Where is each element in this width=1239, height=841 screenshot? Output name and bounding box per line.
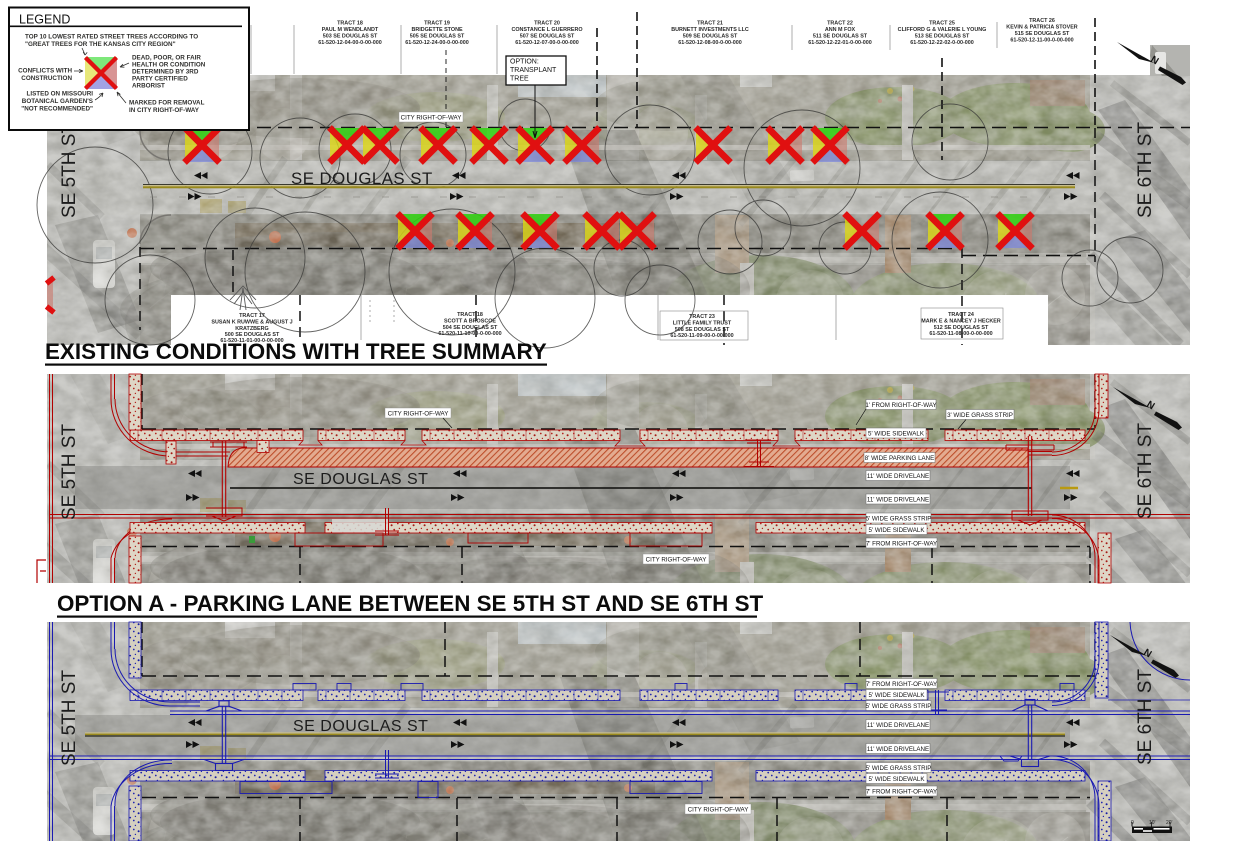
svg-text:5' WIDE SIDEWALK: 5' WIDE SIDEWALK <box>869 692 926 699</box>
svg-text:515 SE DOUGLAS ST: 515 SE DOUGLAS ST <box>1015 31 1070 37</box>
svg-text:8' WIDE PARKING LANE: 8' WIDE PARKING LANE <box>865 455 935 462</box>
svg-text:SE 6TH ST: SE 6TH ST <box>1135 122 1156 218</box>
svg-text:MARK E & NANCEY J HECKER: MARK E & NANCEY J HECKER <box>921 319 1001 325</box>
svg-text:LITTLE FAMILY TRUST: LITTLE FAMILY TRUST <box>673 321 732 327</box>
svg-text:SE DOUGLAS ST: SE DOUGLAS ST <box>293 471 428 488</box>
svg-text:DETERMINED BY 3RD: DETERMINED BY 3RD <box>132 69 199 76</box>
svg-text:61-520-12-11-00-0-00-000: 61-520-12-11-00-0-00-000 <box>1010 38 1073 44</box>
svg-text:20': 20' <box>1166 820 1173 826</box>
svg-text:BRIDGETTE STONE: BRIDGETTE STONE <box>411 27 463 33</box>
svg-text:LEGEND: LEGEND <box>19 13 70 27</box>
svg-text:SE 6TH ST: SE 6TH ST <box>1135 669 1156 765</box>
svg-text:TRACT 25: TRACT 25 <box>929 21 955 27</box>
svg-text:OPTION:: OPTION: <box>510 59 539 66</box>
svg-text:"NOT RECOMMENDED": "NOT RECOMMENDED" <box>21 106 93 113</box>
svg-text:TRACT 18: TRACT 18 <box>337 21 363 27</box>
svg-text:5' WIDE SIDEWALK: 5' WIDE SIDEWALK <box>868 431 925 438</box>
svg-text:TRACT 17: TRACT 17 <box>239 313 265 319</box>
svg-text:61-520-12-04-00-0-00-000: 61-520-12-04-00-0-00-000 <box>318 40 382 46</box>
svg-text:SE 5TH ST: SE 5TH ST <box>59 424 80 520</box>
svg-text:10': 10' <box>1149 820 1156 826</box>
svg-text:CONSTANCE L GUERRERO: CONSTANCE L GUERRERO <box>511 27 582 33</box>
svg-text:TRACT 22: TRACT 22 <box>827 21 853 27</box>
svg-text:TRACT 24: TRACT 24 <box>948 312 974 318</box>
svg-text:CITY RIGHT-OF-WAY: CITY RIGHT-OF-WAY <box>401 115 462 122</box>
svg-text:TREE: TREE <box>510 76 529 83</box>
svg-text:5' WIDE SIDEWALK: 5' WIDE SIDEWALK <box>869 776 926 783</box>
svg-text:SE 6TH ST: SE 6TH ST <box>1135 423 1156 519</box>
svg-text:TOP 10 LOWEST RATED STREET TRE: TOP 10 LOWEST RATED STREET TREES ACCORDI… <box>25 34 198 41</box>
svg-text:LISTED ON MISSOURI: LISTED ON MISSOURI <box>27 91 94 98</box>
svg-text:5' WIDE GRASS STRIP: 5' WIDE GRASS STRIP <box>866 765 932 772</box>
svg-text:61-520-11-08-00-0-00-000: 61-520-11-08-00-0-00-000 <box>929 331 992 337</box>
svg-text:7' FROM RIGHT-OF-WAY: 7' FROM RIGHT-OF-WAY <box>866 789 937 796</box>
svg-text:7' FROM RIGHT-OF-WAY: 7' FROM RIGHT-OF-WAY <box>866 681 937 688</box>
svg-text:TRACT 23: TRACT 23 <box>689 314 715 320</box>
svg-text:61-520-12-07-00-0-00-000: 61-520-12-07-00-0-00-000 <box>515 40 579 46</box>
svg-text:61-520-12-22-01-0-00-000: 61-520-12-22-01-0-00-000 <box>808 40 872 46</box>
svg-text:PARTY CERTIFIED: PARTY CERTIFIED <box>132 76 188 83</box>
svg-text:BOTANICAL GARDEN'S: BOTANICAL GARDEN'S <box>22 98 93 105</box>
svg-text:TRACT 21: TRACT 21 <box>697 21 723 27</box>
svg-text:"GREAT TREES FOR THE KANSAS CI: "GREAT TREES FOR THE KANSAS CITY REGION" <box>25 41 176 48</box>
svg-text:509 SE DOUGLAS ST: 509 SE DOUGLAS ST <box>683 34 738 40</box>
svg-text:BURNETT INVESTMENTS LLC: BURNETT INVESTMENTS LLC <box>671 27 749 33</box>
svg-text:CITY RIGHT-OF-WAY: CITY RIGHT-OF-WAY <box>646 557 707 564</box>
svg-text:7' FROM RIGHT-OF-WAY: 7' FROM RIGHT-OF-WAY <box>866 541 937 548</box>
svg-text:ANN M FOX: ANN M FOX <box>825 27 856 33</box>
svg-text:11' WIDE DRIVELANE: 11' WIDE DRIVELANE <box>867 746 929 753</box>
svg-text:ARBORIST: ARBORIST <box>132 83 165 90</box>
svg-text:5' WIDE GRASS STRIP: 5' WIDE GRASS STRIP <box>866 516 932 523</box>
svg-text:503 SE DOUGLAS ST: 503 SE DOUGLAS ST <box>323 34 378 40</box>
svg-text:SUSAN K RUWWE & AUGUST J: SUSAN K RUWWE & AUGUST J <box>211 320 292 326</box>
svg-text:SE 5TH ST: SE 5TH ST <box>59 670 80 766</box>
svg-text:505 SE DOUGLAS ST: 505 SE DOUGLAS ST <box>410 34 465 40</box>
svg-text:61-520-11-09-00-0-00-000: 61-520-11-09-00-0-00-000 <box>670 333 733 339</box>
svg-text:61-520-12-08-00-0-00-000: 61-520-12-08-00-0-00-000 <box>678 40 742 46</box>
svg-text:11' WIDE DRIVELANE: 11' WIDE DRIVELANE <box>867 497 929 504</box>
svg-text:OPTION A - PARKING LANE BETWEE: OPTION A - PARKING LANE BETWEEN SE 5TH S… <box>57 591 764 616</box>
svg-text:HEALTH OR CONDITION: HEALTH OR CONDITION <box>132 62 206 69</box>
svg-text:1' FROM RIGHT-OF-WAY: 1' FROM RIGHT-OF-WAY <box>865 402 936 409</box>
svg-text:11' WIDE DRIVELANE: 11' WIDE DRIVELANE <box>867 473 929 480</box>
svg-text:TRACT 18: TRACT 18 <box>457 312 483 318</box>
svg-text:PAUL M WENDLANDT: PAUL M WENDLANDT <box>322 27 379 33</box>
svg-text:5' WIDE GRASS STRIP: 5' WIDE GRASS STRIP <box>866 703 932 710</box>
svg-text:IN CITY RIGHT-OF-WAY: IN CITY RIGHT-OF-WAY <box>129 107 200 114</box>
svg-text:TRANSPLANT: TRANSPLANT <box>510 67 557 74</box>
svg-text:TRACT 19: TRACT 19 <box>424 21 450 27</box>
svg-text:TRACT 20: TRACT 20 <box>534 21 560 27</box>
svg-text:SE 5TH ST: SE 5TH ST <box>59 122 80 218</box>
svg-text:EXISTING CONDITIONS WITH TREE: EXISTING CONDITIONS WITH TREE SUMMARY <box>45 339 547 364</box>
svg-text:CONSTRUCTION: CONSTRUCTION <box>21 75 72 82</box>
svg-text:TRACT 26: TRACT 26 <box>1029 18 1055 24</box>
svg-text:CONFLICTS WITH: CONFLICTS WITH <box>18 68 72 75</box>
svg-text:DEAD, POOR, OR FAIR: DEAD, POOR, OR FAIR <box>132 55 201 62</box>
svg-text:CITY RIGHT-OF-WAY: CITY RIGHT-OF-WAY <box>388 411 449 418</box>
svg-text:511 SE DOUGLAS ST: 511 SE DOUGLAS ST <box>813 34 868 40</box>
svg-text:61-520-12-22-02-0-00-000: 61-520-12-22-02-0-00-000 <box>910 40 974 46</box>
svg-text:CLIFFORD G & VALERIE L YOUNG: CLIFFORD G & VALERIE L YOUNG <box>898 27 987 33</box>
svg-text:KEVIN & PATRICIA STOVER: KEVIN & PATRICIA STOVER <box>1006 25 1077 31</box>
svg-text:SE DOUGLAS ST: SE DOUGLAS ST <box>291 169 433 188</box>
svg-text:MARKED FOR REMOVAL: MARKED FOR REMOVAL <box>129 100 205 107</box>
svg-text:61-520-12-24-00-0-00-000: 61-520-12-24-00-0-00-000 <box>405 40 469 46</box>
svg-text:513 SE DOUGLAS ST: 513 SE DOUGLAS ST <box>915 34 970 40</box>
svg-text:3' WIDE GRASS STRIP: 3' WIDE GRASS STRIP <box>947 412 1013 419</box>
svg-text:CITY RIGHT-OF-WAY: CITY RIGHT-OF-WAY <box>688 807 749 814</box>
svg-text:5' WIDE SIDEWALK: 5' WIDE SIDEWALK <box>869 527 926 534</box>
svg-text:SE DOUGLAS ST: SE DOUGLAS ST <box>293 718 428 735</box>
svg-text:61-520-11-10-00-0-00-000: 61-520-11-10-00-0-00-000 <box>438 331 501 337</box>
svg-text:11' WIDE DRIVELANE: 11' WIDE DRIVELANE <box>867 722 929 729</box>
svg-text:SCOTT A BROSCOE: SCOTT A BROSCOE <box>444 319 496 325</box>
svg-text:507 SE DOUGLAS ST: 507 SE DOUGLAS ST <box>520 34 575 40</box>
